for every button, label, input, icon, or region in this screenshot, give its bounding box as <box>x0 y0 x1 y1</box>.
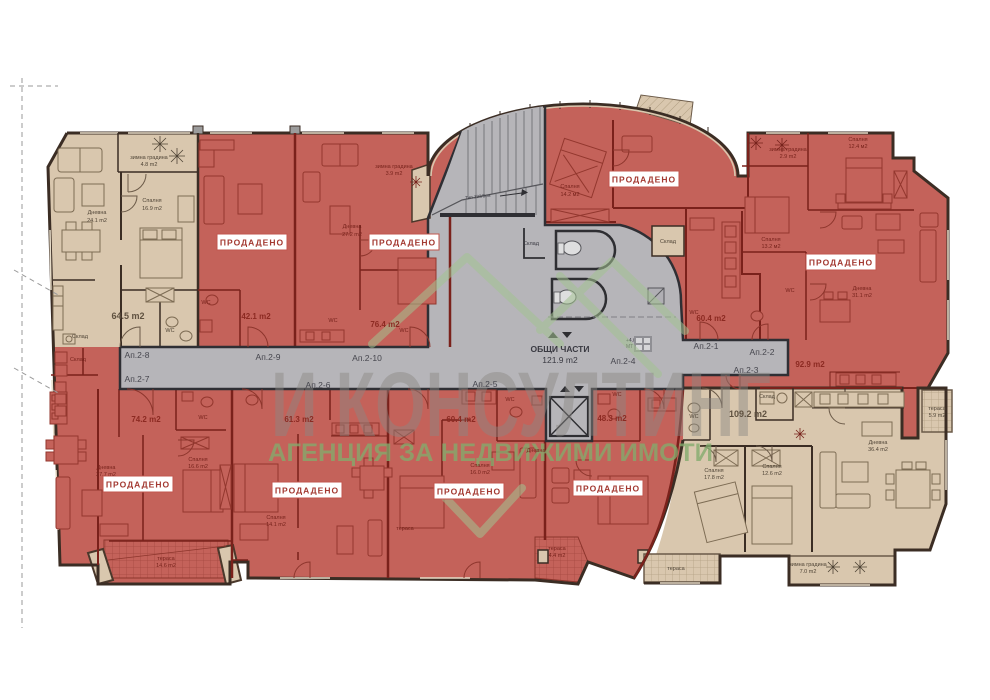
svg-text:ОБЩИ ЧАСТИ: ОБЩИ ЧАСТИ <box>531 344 590 354</box>
svg-text:Дневна: Дневна <box>97 465 117 471</box>
svg-text:Ап.2-8: Ап.2-8 <box>125 350 150 360</box>
svg-text:27.7 m2: 27.7 m2 <box>96 472 116 478</box>
svg-text:Спалня: Спалня <box>762 464 781 470</box>
svg-text:WC: WC <box>198 415 207 421</box>
svg-text:7.0 m2: 7.0 m2 <box>800 569 817 575</box>
svg-text:Склад: Склад <box>759 394 776 400</box>
svg-text:Ап.2-7: Ап.2-7 <box>125 374 150 384</box>
svg-text:WC: WC <box>505 397 514 403</box>
svg-text:4.8 m2: 4.8 m2 <box>141 162 158 168</box>
svg-text:12.6 m2: 12.6 m2 <box>762 471 782 477</box>
svg-text:Склад: Склад <box>523 241 540 247</box>
svg-text:ПРОДАДЕНО: ПРОДАДЕНО <box>576 484 640 494</box>
svg-text:2.9 m2: 2.9 m2 <box>780 154 797 160</box>
svg-text:12.4 м2: 12.4 м2 <box>848 144 867 150</box>
svg-text:24.1 m2: 24.1 m2 <box>87 218 107 224</box>
svg-text:Спалня: Спалня <box>470 463 489 469</box>
svg-text:14.6 m2: 14.6 m2 <box>156 563 176 569</box>
svg-text:Спалня: Спалня <box>142 198 161 204</box>
svg-text:Спалня: Спалня <box>761 237 780 243</box>
svg-text:60.4 m2: 60.4 m2 <box>446 415 476 424</box>
svg-text:17.8 m2: 17.8 m2 <box>704 475 724 481</box>
svg-text:Спалня: Спалня <box>704 468 723 474</box>
svg-text:ПРОДАДЕНО: ПРОДАДЕНО <box>612 175 676 185</box>
svg-text:зимна градина: зимна градина <box>769 147 807 153</box>
svg-text:16.0 m2: 16.0 m2 <box>470 470 490 476</box>
svg-text:61.3 m2: 61.3 m2 <box>284 415 314 424</box>
svg-text:WC: WC <box>785 288 794 294</box>
svg-text:14.1 m2: 14.1 m2 <box>266 522 286 528</box>
svg-text:109.2 m2: 109.2 m2 <box>729 409 767 419</box>
svg-text:76.4 m2: 76.4 m2 <box>370 320 400 329</box>
svg-text:зимна градина: зимна градина <box>130 155 168 161</box>
svg-text:АГЕНЦИЯ ЗА НЕДВИЖИМИ ИМОТИ: АГЕНЦИЯ ЗА НЕДВИЖИМИ ИМОТИ <box>268 439 713 467</box>
svg-text:тераса: тераса <box>396 526 414 532</box>
svg-text:ПРОДАДЕНО: ПРОДАДЕНО <box>809 258 873 268</box>
svg-text:ПРОДАДЕНО: ПРОДАДЕНО <box>437 487 501 497</box>
svg-text:14.2 м2: 14.2 м2 <box>560 192 579 198</box>
svg-text:Спалня: Спалня <box>266 515 285 521</box>
svg-text:ПРОДАДЕНО: ПРОДАДЕНО <box>220 238 284 248</box>
svg-text:16.6 m2: 16.6 m2 <box>188 464 208 470</box>
svg-text:тераса: тераса <box>928 406 946 412</box>
svg-text:Спалня: Спалня <box>560 184 579 190</box>
svg-text:Ап.2-2: Ап.2-2 <box>750 347 775 357</box>
svg-text:WC: WC <box>328 318 337 324</box>
svg-text:Дневна: Дневна <box>343 224 363 230</box>
svg-text:5.9 m2: 5.9 m2 <box>929 413 946 419</box>
svg-text:74.2 m2: 74.2 m2 <box>131 415 161 424</box>
svg-text:Ап.2-1: Ап.2-1 <box>694 341 719 351</box>
svg-text:Дневна: Дневна <box>88 210 108 216</box>
svg-text:4.4 m2: 4.4 m2 <box>549 553 566 559</box>
svg-text:Дневна: Дневна <box>869 440 889 446</box>
svg-text:WC: WC <box>399 328 408 334</box>
svg-text:Дневна: Дневна <box>853 286 873 292</box>
svg-text:16.9 m2: 16.9 m2 <box>142 206 162 212</box>
svg-text:зимна градина: зимна градина <box>789 562 827 568</box>
svg-text:42.1 m2: 42.1 m2 <box>241 312 271 321</box>
svg-text:тераса: тераса <box>667 566 685 572</box>
svg-text:Ап.2-9: Ап.2-9 <box>256 352 281 362</box>
svg-text:36.4 m2: 36.4 m2 <box>868 447 888 453</box>
svg-text:Склад: Склад <box>70 357 87 363</box>
svg-text:Ап.2-10: Ап.2-10 <box>352 353 382 363</box>
svg-text:WC: WC <box>201 300 210 306</box>
svg-text:Склад: Склад <box>72 334 89 340</box>
svg-text:WC: WC <box>689 414 698 420</box>
svg-text:тераса: тераса <box>157 556 175 562</box>
svg-text:Дневна: Дневна <box>527 448 547 454</box>
svg-text:48.3 m2: 48.3 m2 <box>597 414 627 423</box>
svg-text:зимна градина: зимна градина <box>375 164 413 170</box>
svg-text:Спалня: Спалня <box>188 457 207 463</box>
svg-text:27.2 m2: 27.2 m2 <box>342 232 362 238</box>
svg-text:WC: WC <box>689 310 698 316</box>
svg-text:Ап.2-3: Ап.2-3 <box>734 365 759 375</box>
svg-text:31.1 m2: 31.1 m2 <box>852 293 872 299</box>
svg-text:ПРОДАДЕНО: ПРОДАДЕНО <box>372 238 436 248</box>
svg-text:Спалня: Спалня <box>848 137 867 143</box>
svg-text:92.9 m2: 92.9 m2 <box>795 360 825 369</box>
svg-text:ПРОДАДЕНО: ПРОДАДЕНО <box>106 480 170 490</box>
svg-text:ПРОДАДЕНО: ПРОДАДЕНО <box>275 486 339 496</box>
svg-text:WC: WC <box>612 392 621 398</box>
svg-text:60.4 m2: 60.4 m2 <box>696 314 726 323</box>
svg-text:Ап.2-4: Ап.2-4 <box>611 356 636 366</box>
svg-text:64.5 m2: 64.5 m2 <box>111 311 144 321</box>
svg-text:Ап.2-5: Ап.2-5 <box>473 379 498 389</box>
svg-text:3.9 m2: 3.9 m2 <box>386 171 403 177</box>
svg-text:Склад: Склад <box>660 239 677 245</box>
svg-text:тераса: тераса <box>548 546 566 552</box>
svg-text:Ап.2-6: Ап.2-6 <box>306 380 331 390</box>
svg-text:WC: WC <box>165 328 174 334</box>
svg-text:121.9 m2: 121.9 m2 <box>542 355 578 365</box>
svg-text:13.2 м2: 13.2 м2 <box>761 244 780 250</box>
